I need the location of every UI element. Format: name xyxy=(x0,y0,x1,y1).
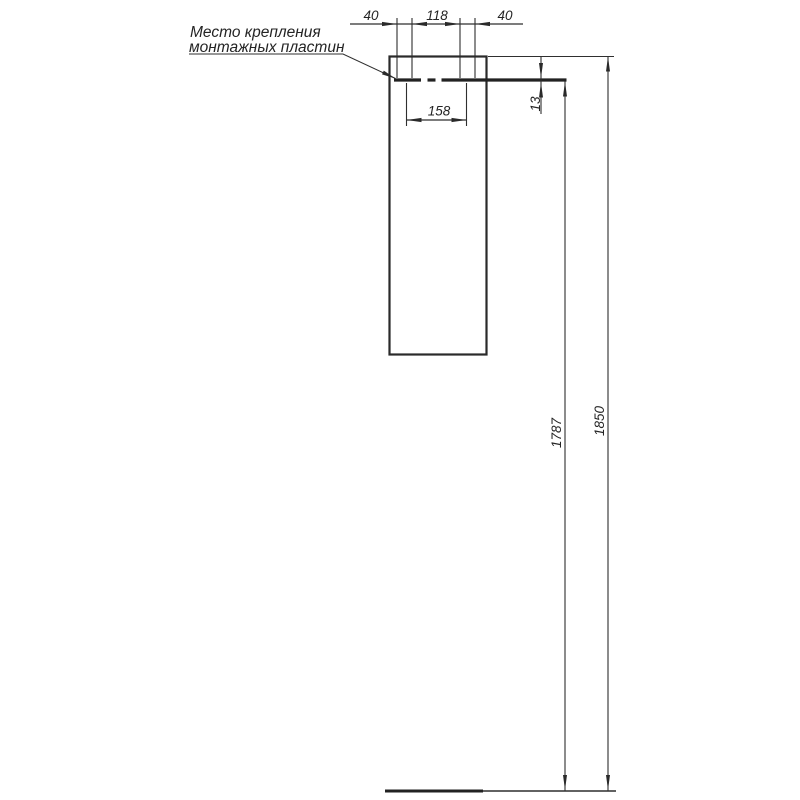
dim-40-left: 40 xyxy=(363,8,379,23)
arrowhead-icon xyxy=(563,82,567,97)
arrowhead-icon xyxy=(563,775,567,790)
dim-13: 13 xyxy=(528,96,543,112)
arrowhead-icon xyxy=(539,63,543,78)
height-dimensions: 1787 1850 xyxy=(488,57,614,791)
arrowhead-icon xyxy=(539,83,543,98)
arrowhead-icon xyxy=(452,118,467,122)
dimension-13: 13 xyxy=(528,57,543,114)
dim-1787: 1787 xyxy=(549,417,564,448)
arrowhead-icon xyxy=(606,775,610,790)
drawing-page: Место крепления монтажных пластин 40 118… xyxy=(0,0,800,800)
arrowhead-icon xyxy=(475,22,490,26)
leader-line xyxy=(189,54,396,79)
arrowhead-icon xyxy=(412,22,427,26)
arrowhead-icon xyxy=(606,57,610,72)
top-dimension-chain: 40 118 40 xyxy=(350,8,523,78)
arrowhead-icon xyxy=(407,118,422,122)
dim-118: 118 xyxy=(426,8,448,23)
dim-1850: 1850 xyxy=(592,405,607,436)
dim-158: 158 xyxy=(428,104,451,119)
arrowhead-icon xyxy=(382,22,397,26)
callout-note: Место крепления монтажных пластин xyxy=(189,24,396,79)
dimension-158: 158 xyxy=(407,83,467,126)
dim-40-right: 40 xyxy=(497,8,513,23)
cabinet-outline xyxy=(390,57,487,355)
mounting-diagram: Место крепления монтажных пластин 40 118… xyxy=(0,0,800,800)
